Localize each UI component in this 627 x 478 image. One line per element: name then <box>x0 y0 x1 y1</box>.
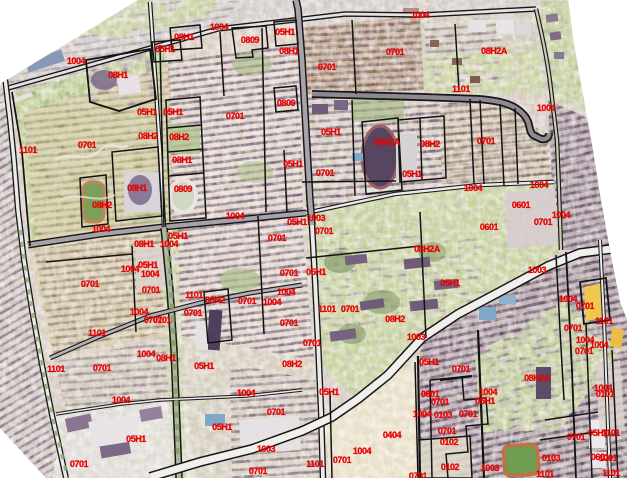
svg-text:1004: 1004 <box>411 10 430 20</box>
svg-text:0701: 0701 <box>409 471 428 478</box>
svg-text:1004: 1004 <box>112 395 131 405</box>
svg-text:05H1: 05H1 <box>319 387 339 397</box>
svg-text:0701: 0701 <box>238 296 257 306</box>
svg-text:1004: 1004 <box>160 239 179 249</box>
svg-text:1101: 1101 <box>595 316 613 326</box>
svg-text:1004: 1004 <box>530 180 549 190</box>
svg-text:1101: 1101 <box>306 459 324 469</box>
svg-text:0701: 0701 <box>333 455 352 465</box>
svg-text:1101: 1101 <box>452 84 470 94</box>
svg-text:0809: 0809 <box>174 184 193 194</box>
svg-text:05H1: 05H1 <box>126 434 146 444</box>
svg-text:0601: 0601 <box>480 222 499 232</box>
svg-text:1004: 1004 <box>92 224 111 234</box>
svg-text:0701: 0701 <box>142 285 161 295</box>
svg-text:08H2A: 08H2A <box>374 137 401 147</box>
svg-text:08H2: 08H2 <box>385 314 405 324</box>
svg-text:1101: 1101 <box>185 290 203 300</box>
svg-text:0701: 0701 <box>318 62 337 72</box>
svg-text:08H1: 08H1 <box>279 46 299 56</box>
svg-text:0102: 0102 <box>440 437 459 447</box>
svg-text:1101: 1101 <box>19 145 37 155</box>
svg-text:1004: 1004 <box>464 183 483 193</box>
svg-text:1003: 1003 <box>257 444 276 454</box>
svg-text:1003: 1003 <box>528 265 547 275</box>
svg-text:05H1: 05H1 <box>321 127 341 137</box>
svg-text:05H1: 05H1 <box>283 159 303 169</box>
svg-text:0102: 0102 <box>441 462 460 472</box>
svg-text:08H1: 08H1 <box>156 353 176 363</box>
svg-text:0701: 0701 <box>341 304 360 314</box>
svg-text:0701: 0701 <box>280 318 299 328</box>
svg-text:08H1: 08H1 <box>134 239 154 249</box>
svg-text:0701: 0701 <box>567 432 586 442</box>
svg-text:05H1: 05H1 <box>163 107 183 117</box>
svg-text:0701: 0701 <box>575 346 594 356</box>
svg-text:05H1: 05H1 <box>275 27 295 37</box>
svg-text:05H1: 05H1 <box>155 44 175 54</box>
svg-text:1101: 1101 <box>602 428 620 438</box>
svg-text:08H2A: 08H2A <box>414 244 441 254</box>
svg-text:1101: 1101 <box>536 469 554 478</box>
svg-text:05H1: 05H1 <box>212 422 232 432</box>
svg-text:05H1: 05H1 <box>137 107 157 117</box>
svg-text:1101: 1101 <box>47 364 65 374</box>
svg-text:0101: 0101 <box>596 389 615 399</box>
svg-text:05H1: 05H1 <box>419 357 439 367</box>
svg-text:0404: 0404 <box>383 430 402 440</box>
svg-text:0701: 0701 <box>386 47 405 57</box>
svg-text:1003: 1003 <box>407 332 426 342</box>
svg-text:1004: 1004 <box>137 349 156 359</box>
svg-text:0701: 0701 <box>81 279 100 289</box>
svg-text:1003: 1003 <box>481 463 500 473</box>
svg-text:0701: 0701 <box>534 217 553 227</box>
svg-text:1004: 1004 <box>413 409 432 419</box>
svg-text:1001: 1001 <box>599 453 618 463</box>
svg-text:1004: 1004 <box>237 388 256 398</box>
svg-text:1004: 1004 <box>141 269 160 279</box>
svg-text:08H2: 08H2 <box>138 131 158 141</box>
svg-text:1004: 1004 <box>552 210 571 220</box>
svg-text:08H2: 08H2 <box>282 359 302 369</box>
svg-text:0809: 0809 <box>241 35 260 45</box>
svg-text:1101: 1101 <box>88 328 106 338</box>
svg-text:1004: 1004 <box>537 103 556 113</box>
svg-text:0701: 0701 <box>153 315 172 325</box>
svg-text:0701: 0701 <box>316 168 335 178</box>
svg-text:05H1: 05H1 <box>287 217 307 227</box>
svg-text:05H1: 05H1 <box>475 396 495 406</box>
svg-text:0103: 0103 <box>434 410 453 420</box>
svg-text:0701: 0701 <box>477 136 496 146</box>
svg-text:08H2: 08H2 <box>205 295 225 305</box>
svg-text:08H2: 08H2 <box>169 132 189 142</box>
svg-text:0701: 0701 <box>226 111 245 121</box>
svg-text:05H1: 05H1 <box>306 267 326 277</box>
svg-text:05H1: 05H1 <box>402 169 422 179</box>
svg-text:1003: 1003 <box>307 213 326 223</box>
svg-text:1004: 1004 <box>353 446 372 456</box>
svg-text:0701: 0701 <box>267 407 286 417</box>
svg-text:0701: 0701 <box>268 233 287 243</box>
svg-text:1004: 1004 <box>121 264 140 274</box>
svg-text:1004: 1004 <box>559 294 578 304</box>
svg-text:0701: 0701 <box>438 426 457 436</box>
svg-text:0601: 0601 <box>512 200 531 210</box>
svg-text:08H2: 08H2 <box>420 139 440 149</box>
svg-text:05H1: 05H1 <box>194 361 214 371</box>
svg-text:0701: 0701 <box>459 409 478 419</box>
svg-text:08H2A: 08H2A <box>524 373 551 383</box>
svg-text:1004: 1004 <box>263 297 282 307</box>
svg-text:0103: 0103 <box>542 453 561 463</box>
svg-text:0701: 0701 <box>303 338 322 348</box>
svg-text:0701: 0701 <box>315 226 334 236</box>
svg-text:08H1: 08H1 <box>172 155 192 165</box>
svg-text:1101: 1101 <box>602 468 620 478</box>
svg-text:08H1: 08H1 <box>108 70 128 80</box>
svg-text:08H1: 08H1 <box>174 32 194 42</box>
svg-text:0701: 0701 <box>431 397 450 407</box>
svg-text:1004: 1004 <box>210 22 229 32</box>
svg-text:1101: 1101 <box>318 304 336 314</box>
svg-text:0701: 0701 <box>184 308 203 318</box>
svg-text:1004: 1004 <box>67 56 86 66</box>
svg-text:0701: 0701 <box>249 466 268 476</box>
svg-text:08H2A: 08H2A <box>481 46 508 56</box>
svg-text:0701: 0701 <box>452 364 471 374</box>
svg-text:05H1: 05H1 <box>440 278 460 288</box>
svg-text:0701: 0701 <box>70 459 89 469</box>
svg-text:0701: 0701 <box>93 363 112 373</box>
svg-text:0809: 0809 <box>277 98 296 108</box>
svg-text:08H1: 08H1 <box>127 183 147 193</box>
svg-text:1004: 1004 <box>226 211 245 221</box>
svg-text:1004: 1004 <box>277 287 296 297</box>
svg-text:0701: 0701 <box>280 268 299 278</box>
svg-text:0701: 0701 <box>564 323 583 333</box>
svg-text:08H2: 08H2 <box>92 200 112 210</box>
svg-text:0701: 0701 <box>576 301 595 311</box>
svg-text:0701: 0701 <box>78 140 97 150</box>
